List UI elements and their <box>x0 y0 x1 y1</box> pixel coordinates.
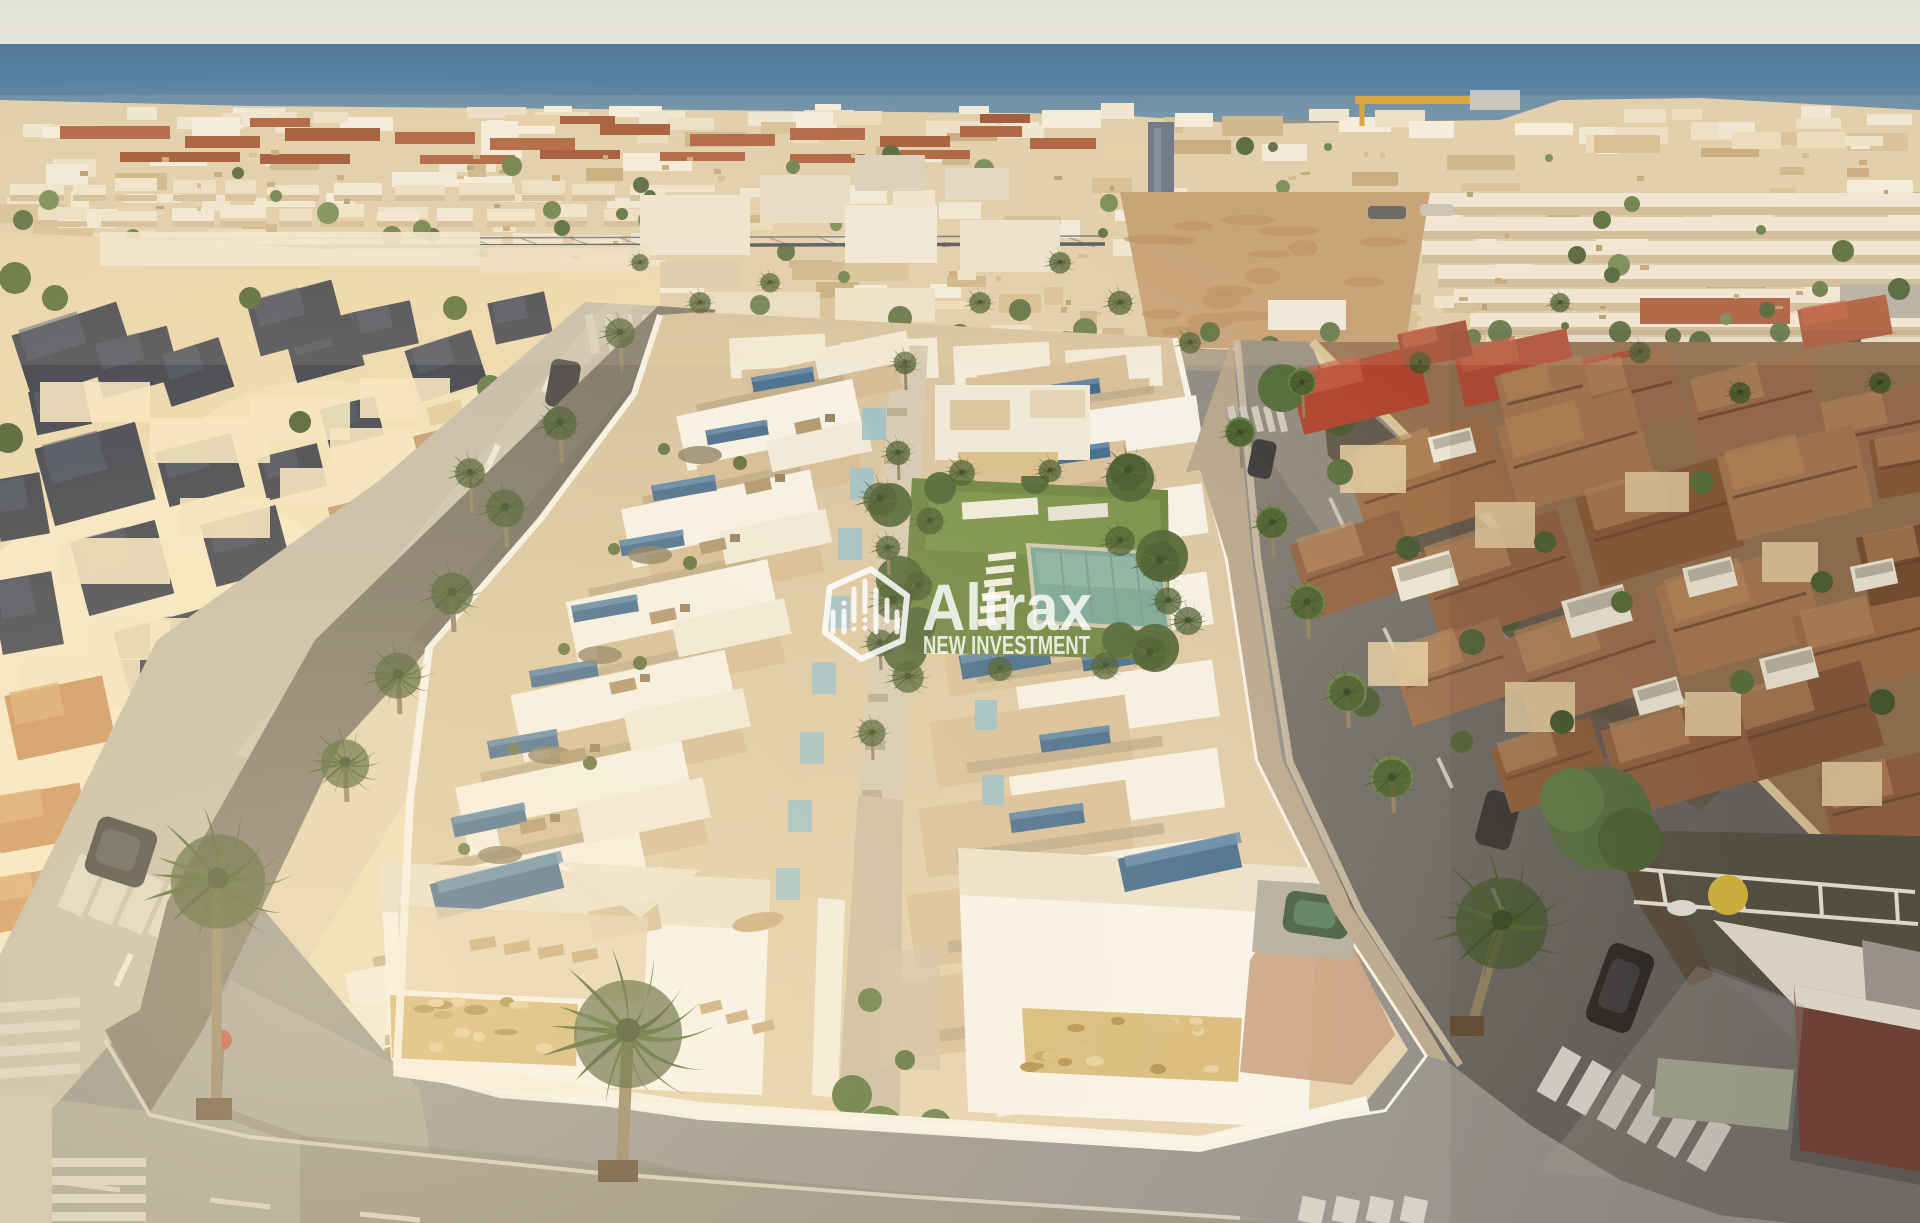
svg-text:NEW INVESTMENT: NEW INVESTMENT <box>923 630 1090 660</box>
